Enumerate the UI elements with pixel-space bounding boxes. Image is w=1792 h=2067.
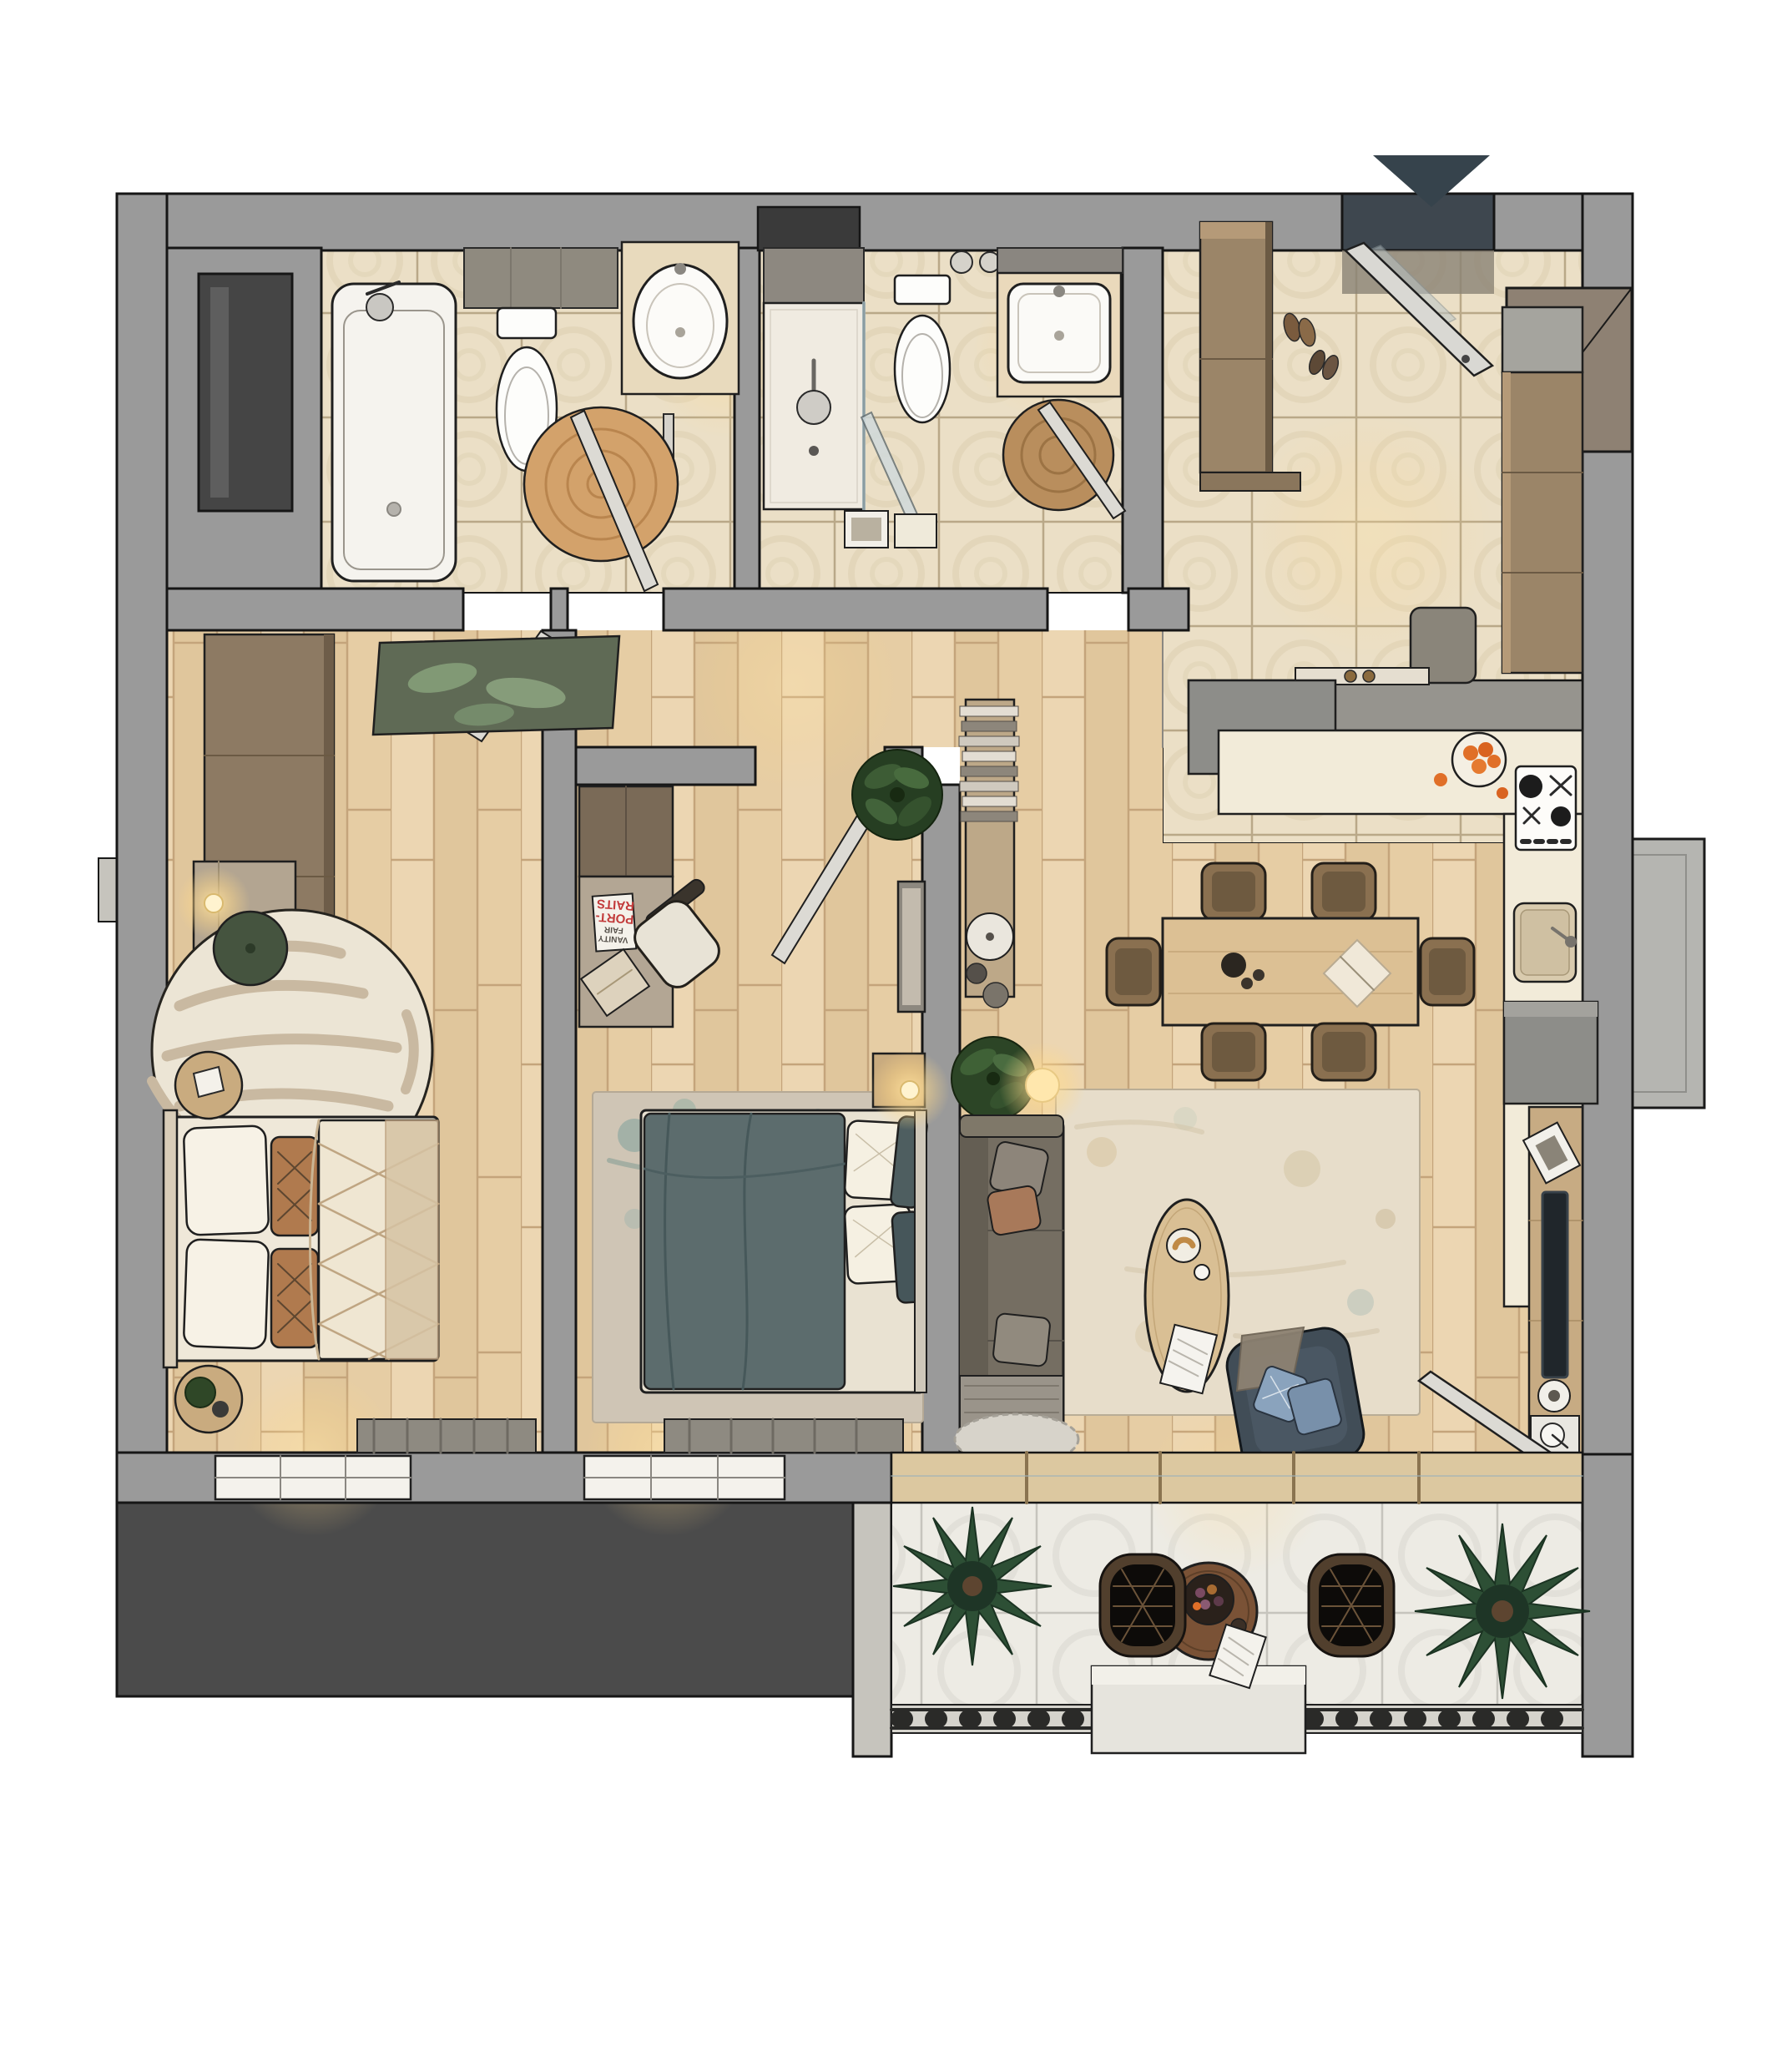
magazine-text-4: RAITS bbox=[596, 897, 634, 913]
kitchen-tall-cabinet-top bbox=[1504, 1002, 1598, 1017]
kitchen-tall-cabinet bbox=[1504, 1002, 1598, 1104]
floor-lamp bbox=[1026, 1069, 1059, 1102]
sofa-pillow-rust bbox=[987, 1185, 1042, 1236]
dining-chair-bottom-right-seat bbox=[1322, 1032, 1365, 1072]
sconce-lamp-1 bbox=[204, 894, 223, 912]
sofa-arm-top bbox=[960, 1115, 1063, 1137]
nightstand-2-vase bbox=[212, 1401, 229, 1418]
console-book-5 bbox=[961, 766, 1017, 776]
living-rug-blob1 bbox=[1087, 1137, 1117, 1167]
hall-wardrobe-right bbox=[1502, 372, 1583, 673]
console-book-4 bbox=[962, 751, 1016, 761]
kitchen-sink-basin bbox=[1521, 910, 1569, 975]
wall-bath-bottom-a bbox=[167, 589, 463, 630]
floor-plan-canvas: VANITYFAIRPORT-RAITS bbox=[0, 0, 1792, 2067]
bath1-drain bbox=[675, 327, 685, 337]
console-book-1 bbox=[960, 706, 1018, 716]
coffee-cup bbox=[1194, 1265, 1209, 1280]
hallway-frame-2 bbox=[895, 514, 936, 548]
bathtub bbox=[332, 284, 456, 581]
fruit-loose-2 bbox=[1497, 787, 1508, 799]
dining-chair-top-left-seat bbox=[1212, 872, 1255, 912]
bed1-pillow-2 bbox=[184, 1239, 269, 1348]
hob-burner-1 bbox=[1519, 775, 1542, 798]
hall-wardrobe-left bbox=[1200, 222, 1272, 473]
bed1-headboard bbox=[164, 1110, 177, 1367]
fruit-2 bbox=[1478, 742, 1493, 757]
bedroom1-curtain bbox=[357, 1419, 536, 1453]
bedroom2-lamp bbox=[901, 1081, 919, 1099]
berry-3 bbox=[1214, 1596, 1224, 1606]
wall-tv bbox=[1542, 1192, 1567, 1377]
console-book-6 bbox=[960, 781, 1018, 791]
console-book-8 bbox=[961, 811, 1017, 821]
berry-plate bbox=[1184, 1574, 1234, 1625]
bath1-mosaic-ledge bbox=[464, 248, 618, 308]
hall-bench-knob2 bbox=[1363, 670, 1375, 682]
bathtub-faucet bbox=[366, 294, 393, 321]
dining-chair-top-right-seat bbox=[1322, 872, 1365, 912]
sofa-plant-center bbox=[987, 1072, 1000, 1085]
bath2-wall-clock bbox=[951, 251, 972, 273]
dining-bowl bbox=[1221, 953, 1246, 978]
dining-cup1 bbox=[1241, 978, 1253, 989]
hob-burner-4 bbox=[1551, 806, 1571, 826]
console-pot bbox=[967, 963, 987, 983]
ac-box-top bbox=[1092, 1666, 1305, 1685]
dining-chair-right-seat bbox=[1429, 948, 1466, 995]
console-book-7 bbox=[962, 796, 1017, 806]
berry-5 bbox=[1193, 1602, 1201, 1610]
fruit-3 bbox=[1471, 759, 1487, 774]
toilet2-tank bbox=[895, 275, 950, 304]
hallway-frame-1-inner bbox=[851, 518, 881, 541]
living-rug-blob7 bbox=[1376, 1209, 1396, 1229]
green-pouf-button bbox=[245, 943, 255, 953]
wall-bedroom1-bedroom2 bbox=[543, 630, 576, 1453]
shaft-inner-face bbox=[210, 287, 229, 498]
wall-bedroom2-top-a bbox=[576, 747, 755, 785]
shower-head bbox=[797, 391, 830, 424]
wall-bath-bottom-d bbox=[1128, 589, 1189, 630]
bathtub-drain bbox=[387, 503, 401, 516]
console-bowl bbox=[983, 983, 1008, 1008]
dining-chair-left-seat bbox=[1115, 948, 1152, 995]
bath2-drain bbox=[1054, 331, 1064, 341]
fruit-1 bbox=[1463, 745, 1478, 761]
corridor-plant-center bbox=[890, 787, 905, 802]
console-book-2 bbox=[962, 721, 1017, 731]
wall-right-balcony bbox=[1583, 1454, 1633, 1756]
bed1-duvet-dotted bbox=[386, 1120, 438, 1359]
wall-bath2-right bbox=[1123, 248, 1163, 593]
palm-left-pot bbox=[962, 1576, 982, 1596]
bath1-faucet bbox=[674, 263, 686, 275]
hall-wardrobe-left-return bbox=[1200, 473, 1300, 491]
hall-wardrobe-left-top bbox=[1200, 222, 1272, 239]
wall-top-right bbox=[1494, 194, 1583, 250]
fruit-4 bbox=[1487, 755, 1501, 768]
shower-drain bbox=[809, 446, 819, 456]
bath2-vanity-band bbox=[997, 248, 1123, 273]
entry-door-handle bbox=[1461, 355, 1470, 363]
living-rug-blob3 bbox=[1284, 1150, 1320, 1187]
console-plate-center bbox=[986, 932, 994, 941]
floor-plan-page: VANITYFAIRPORT-RAITS bbox=[0, 0, 1792, 2067]
berry-4 bbox=[1200, 1600, 1210, 1610]
console-book-3 bbox=[959, 736, 1019, 746]
bed1-pillow-1 bbox=[184, 1125, 269, 1235]
exterior-dark-mass bbox=[117, 1503, 853, 1696]
berry-2 bbox=[1207, 1584, 1217, 1594]
balcony-threshold bbox=[891, 1453, 1583, 1503]
dining-cup2 bbox=[1253, 969, 1264, 981]
bath2-faucet bbox=[1053, 286, 1065, 297]
tv-console-bowl-center bbox=[1548, 1390, 1560, 1402]
hall-wardrobe-left-side bbox=[1265, 222, 1272, 473]
shower-wall-band bbox=[764, 248, 864, 303]
sofa-pillow-2 bbox=[992, 1313, 1051, 1367]
hall-bench-knob1 bbox=[1345, 670, 1356, 682]
bedroom2-wall-art-inner bbox=[902, 888, 921, 1005]
bed2-headboard bbox=[915, 1110, 926, 1392]
wall-bath-bottom-c bbox=[664, 589, 1047, 630]
fruit-loose-1 bbox=[1434, 773, 1447, 786]
hall-wardrobe-right-top bbox=[1502, 307, 1583, 372]
dining-chair-bottom-left-seat bbox=[1212, 1032, 1255, 1072]
entry-threshold bbox=[1342, 194, 1494, 250]
bath2-niche-dark bbox=[758, 207, 860, 250]
bedroom2-curtain bbox=[664, 1419, 903, 1453]
palm-right-pot bbox=[1492, 1600, 1513, 1622]
toilet1-tank bbox=[497, 308, 556, 338]
wall-bath-bottom-b bbox=[551, 589, 568, 630]
nightstand-2-plant bbox=[185, 1377, 215, 1407]
living-rug-blob4 bbox=[1347, 1289, 1374, 1316]
berry-1 bbox=[1195, 1588, 1205, 1598]
hall-wardrobe-right-side bbox=[1502, 372, 1511, 673]
wall-left bbox=[117, 194, 167, 1503]
